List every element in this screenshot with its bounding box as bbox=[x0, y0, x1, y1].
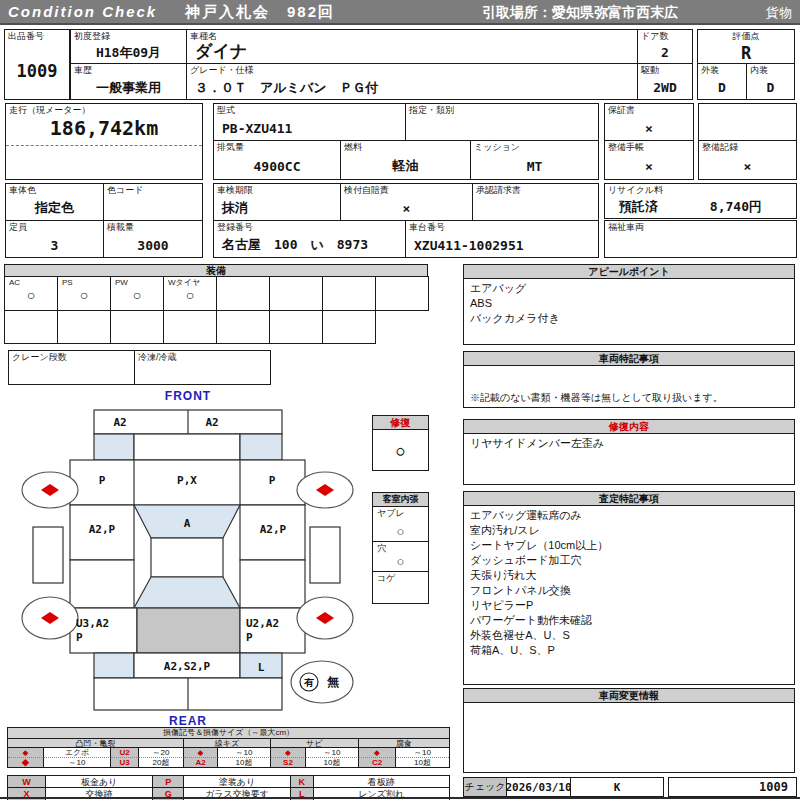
maintenance-record-label: 整備記録 bbox=[699, 141, 796, 153]
appeal-points-header: アピールポイント bbox=[464, 265, 794, 279]
color-code-value bbox=[104, 196, 202, 220]
damage-diamond-icon: ◆ bbox=[184, 748, 218, 758]
damage-diamond-icon: ◆ bbox=[359, 748, 396, 758]
equipment-cell-empty bbox=[110, 310, 164, 344]
body-color-value: 指定色 bbox=[6, 196, 103, 220]
repair-details-header: 修復内容 bbox=[464, 420, 794, 434]
registration-number-value: 名古屋 100 い 8973 bbox=[214, 233, 405, 257]
recycle-fee-label: リサイクル料 bbox=[605, 184, 796, 196]
load-capacity-value: 3000 bbox=[104, 233, 202, 257]
legend-code: U3 bbox=[111, 758, 139, 767]
equipment-cell-pw: PW ○ bbox=[110, 276, 164, 311]
assessment-line: 荷箱A、U、S、P bbox=[470, 643, 788, 658]
damage-diamond-icon: ◆ bbox=[8, 758, 44, 767]
auction-sheet: Condition Check 神戸入札会 982回 引取場所：愛知県弥富市西末… bbox=[0, 0, 800, 800]
legend-cell: 20超 bbox=[139, 758, 184, 767]
lot-number-box: 出品番号 1009 bbox=[4, 29, 70, 100]
equipment-cell-empty bbox=[216, 310, 270, 344]
fuel-value: 軽油 bbox=[341, 153, 470, 179]
vehicle-notes-text: ※記載のない書類・機器等は無しとして取り扱います。 bbox=[464, 366, 794, 407]
equipment-mark: ○ bbox=[58, 287, 110, 303]
check-date: 2026/03/10 bbox=[507, 778, 570, 796]
diagram-cell-label: L bbox=[258, 661, 265, 674]
warranty-box: 保証書 × bbox=[604, 103, 694, 141]
maintenance-record-box: 整備記録 × bbox=[698, 140, 797, 180]
displacement-label: 排気量 bbox=[214, 141, 340, 153]
load-capacity-box: 積載量 3000 bbox=[103, 220, 203, 258]
equipment-mark: ○ bbox=[5, 287, 57, 303]
maintenance-book-label: 整備手帳 bbox=[605, 141, 693, 153]
load-capacity-label: 積載量 bbox=[104, 221, 202, 233]
appeal-line: バックカメラ付き bbox=[470, 311, 788, 326]
vehicle-notes-header: 車両特記事項 bbox=[464, 352, 794, 366]
equipment-mark: ○ bbox=[164, 287, 216, 303]
assessment-notes-header: 査定特記事項 bbox=[464, 492, 794, 506]
drive-value: 2WD bbox=[638, 76, 692, 99]
appeal-line: ABS bbox=[470, 296, 788, 311]
score-box: 評価点 R bbox=[697, 29, 795, 64]
legend-code: W bbox=[8, 776, 46, 788]
assessment-line: シートヤブレ（10cm以上） bbox=[470, 538, 788, 553]
mileage-label: 走行（現メーター） bbox=[6, 104, 202, 116]
equipment-cell-empty bbox=[375, 276, 429, 311]
spare-yes-label: 有 bbox=[303, 677, 314, 688]
cabin-interior-row-burn: コゲ bbox=[373, 572, 428, 603]
assessment-line: リヤピラーP bbox=[470, 598, 788, 613]
doors-value: 2 bbox=[638, 42, 692, 63]
legend-cell: 10超 bbox=[218, 758, 271, 767]
cabin-interior-row-tear: ヤブレ ○ bbox=[373, 507, 428, 542]
change-info-panel: 車両変更情報 bbox=[463, 688, 795, 773]
first-registration-box: 初度登録 H18年09月 bbox=[70, 29, 187, 64]
grade-box: グレード・仕様 ３．０Ｔ アルミバン ＰＧ付 bbox=[186, 63, 638, 100]
legend-cell: 塗装あり bbox=[184, 776, 291, 788]
bottom-rule bbox=[0, 797, 800, 799]
assessment-line: 室内汚れ/スレ bbox=[470, 523, 788, 538]
legend-code: A2 bbox=[184, 758, 218, 767]
cabin-interior-label: ヤブレ bbox=[374, 507, 408, 519]
capacity-box: 定員 3 bbox=[5, 220, 104, 258]
model-name-value: ダイナ bbox=[187, 40, 637, 63]
appeal-points-panel: アピールポイント エアバッグ ABS バックカメラ付き bbox=[463, 264, 795, 345]
recycle-status-value: 預託済 bbox=[619, 198, 658, 216]
check-label: チェック bbox=[464, 780, 506, 794]
check-label-cell: チェック bbox=[463, 777, 507, 797]
legend-group-rust: サビ bbox=[271, 739, 359, 748]
assessment-line: ダッシュボード加工穴 bbox=[470, 553, 788, 568]
maintenance-book-value: × bbox=[605, 153, 693, 179]
legend-group-corrosion: 腐食 bbox=[359, 739, 449, 748]
legend-code: K bbox=[291, 776, 314, 788]
lot-number-value: 1009 bbox=[5, 42, 69, 99]
repair-flag-header: 修復 bbox=[373, 416, 428, 430]
color-code-box: 色コード bbox=[103, 183, 203, 221]
assessment-line: フロントパネル交換 bbox=[470, 583, 788, 598]
mileage-box: 走行（現メーター） 186,742km bbox=[5, 103, 203, 180]
cabin-interior-mark: ○ bbox=[373, 524, 428, 539]
color-code-label: 色コード bbox=[104, 184, 202, 196]
diagram-cell-label: A2,S2,P bbox=[164, 660, 211, 673]
equipment-cell-empty bbox=[269, 276, 323, 311]
equipment-cell-empty bbox=[322, 276, 376, 311]
diagram-cell-label: P bbox=[269, 474, 276, 487]
cabin-interior-label: 穴 bbox=[374, 542, 389, 554]
pickup-location: 引取場所：愛知県弥富市西末広 bbox=[482, 4, 678, 22]
displacement-box: 排気量 4900CC bbox=[213, 140, 341, 180]
diagram-cell-label: P bbox=[246, 631, 253, 644]
approval-label: 承認請求書 bbox=[473, 184, 598, 196]
exterior-grade-label: 外装 bbox=[698, 64, 746, 76]
equipment-cell-empty bbox=[269, 310, 323, 344]
insurance-label: 検付自賠責 bbox=[341, 184, 472, 196]
history-value: 一般事業用 bbox=[71, 76, 186, 99]
insurance-value: × bbox=[341, 196, 472, 220]
exterior-grade-box: 外装 D bbox=[697, 63, 747, 100]
equipment-cell-empty bbox=[322, 310, 376, 344]
transmission-box: ミッション MT bbox=[470, 140, 599, 180]
legend-group-scratch: 線キズ bbox=[184, 739, 271, 748]
welfare-box: 福祉車両 bbox=[604, 220, 797, 258]
displacement-value: 4900CC bbox=[214, 153, 340, 179]
class-value bbox=[406, 116, 598, 140]
damage-diamond-icon: ◆ bbox=[8, 748, 44, 758]
exterior-grade-value: D bbox=[698, 76, 746, 99]
assessment-line: パワーゲート動作未確認 bbox=[470, 613, 788, 628]
legend-code: U2 bbox=[111, 748, 139, 758]
legend-code: S2 bbox=[271, 758, 306, 767]
equipment-cell-ps: PS ○ bbox=[57, 276, 111, 311]
maintenance-book-box: 整備手帳 × bbox=[604, 140, 694, 180]
freezer-box: 冷凍/冷蔵 bbox=[134, 350, 271, 385]
class-box: 指定・類別 bbox=[405, 103, 599, 141]
diagram-cell-label: A2 bbox=[113, 416, 126, 429]
diagram-cell-label: A2,P bbox=[89, 523, 116, 536]
front-label: FRONT bbox=[148, 389, 228, 403]
model-code-label: 型式 bbox=[214, 104, 405, 116]
assessment-notes-panel: 査定特記事項 エアバッグ運転席のみ 室内汚れ/スレ シートヤブレ（10cm以上）… bbox=[463, 491, 795, 685]
history-box: 車歴 一般事業用 bbox=[70, 63, 187, 100]
freezer-value bbox=[135, 363, 270, 384]
cabin-interior-mark: ○ bbox=[373, 554, 428, 569]
category-badge: 貨物 bbox=[766, 4, 792, 22]
diagram-cell-label: P bbox=[76, 631, 83, 644]
equipment-cell-empty bbox=[163, 310, 217, 344]
spare-no-label: 無 bbox=[326, 675, 339, 689]
diagram-cell-label: A bbox=[184, 517, 191, 530]
cabin-interior-header: 客室内張 bbox=[373, 493, 428, 507]
approval-value bbox=[473, 196, 598, 220]
chassis-number-label: 車台番号 bbox=[406, 221, 598, 233]
diagram-cell-label: P bbox=[99, 474, 106, 487]
legend-cell: 10超 bbox=[396, 758, 449, 767]
crane-box: クレーン段数 bbox=[8, 350, 135, 385]
inspection-value: 抹消 bbox=[214, 196, 340, 220]
legend-code: C2 bbox=[359, 758, 396, 767]
registration-number-label: 登録番号 bbox=[214, 221, 405, 233]
legend-cell: エクボ bbox=[44, 748, 111, 758]
legend-code: P bbox=[153, 776, 184, 788]
transmission-label: ミッション bbox=[471, 141, 598, 153]
recycle-fee-box: リサイクル料 預託済 8,740円 bbox=[604, 183, 797, 219]
cabin-interior-row-hole: 穴 ○ bbox=[373, 542, 428, 571]
warranty-label: 保証書 bbox=[605, 104, 693, 116]
equipment-cell-empty bbox=[216, 276, 270, 311]
chassis-number-box: 車台番号 XZU411-1002951 bbox=[405, 220, 599, 258]
fuel-label: 燃料 bbox=[341, 141, 470, 153]
registration-number-box: 登録番号 名古屋 100 い 8973 bbox=[213, 220, 406, 258]
recycle-fee-value: 8,740円 bbox=[710, 198, 762, 216]
equipment-cell-empty bbox=[57, 310, 111, 344]
mileage-second-row bbox=[6, 145, 202, 179]
doors-box: ドア数 2 bbox=[637, 29, 693, 64]
lot-number-label: 出品番号 bbox=[5, 30, 69, 42]
inspection-label: 車検期限 bbox=[214, 184, 340, 196]
legend-cell: ～20 bbox=[139, 748, 184, 758]
equipment-cell-ac: AC ○ bbox=[4, 276, 58, 311]
change-info-body bbox=[464, 703, 794, 772]
equipment-cell-wtire: Wタイヤ ○ bbox=[163, 276, 217, 311]
maintenance-record-value: × bbox=[699, 153, 796, 179]
blank-box bbox=[698, 103, 797, 141]
mileage-value: 186,742km bbox=[6, 116, 202, 140]
equipment-cell-empty bbox=[4, 310, 58, 344]
welfare-value bbox=[605, 233, 796, 257]
crane-label: クレーン段数 bbox=[9, 351, 134, 363]
interior-grade-box: 内装 D bbox=[746, 63, 795, 100]
approval-box: 承認請求書 bbox=[472, 183, 599, 221]
diagram-cell-label: A2,P bbox=[260, 523, 287, 536]
legend-cell: 看板跡 bbox=[314, 776, 449, 788]
legend-group-dent: 凸凹・亀裂 bbox=[8, 739, 184, 748]
grade-label: グレード・仕様 bbox=[187, 64, 637, 76]
change-info-header: 車両変更情報 bbox=[464, 689, 794, 703]
capacity-value: 3 bbox=[6, 233, 103, 257]
legend-cell: 板金あり bbox=[46, 776, 154, 788]
brand-title: Condition Check bbox=[8, 3, 157, 20]
first-registration-value: H18年09月 bbox=[71, 42, 186, 63]
legend-cell: ～10 bbox=[306, 748, 359, 758]
doors-label: ドア数 bbox=[638, 30, 692, 42]
legend-cell: 10超 bbox=[306, 758, 359, 767]
model-code-value: PB-XZU411 bbox=[214, 116, 405, 140]
cabin-interior-panel: 客室内張 ヤブレ ○ 穴 ○ コゲ bbox=[372, 492, 429, 604]
assessment-line: 天張り汚れ大 bbox=[470, 568, 788, 583]
warranty-value: × bbox=[605, 116, 693, 140]
diagram-cell-label: P,X bbox=[177, 474, 197, 487]
insurance-box: 検付自賠責 × bbox=[340, 183, 473, 221]
damage-legend: 損傷記号＆損傷サイズ（～最大cm） 凸凹・亀裂 線キズ サビ 腐食 ◆ エクボ … bbox=[7, 727, 450, 800]
damage-diamond-icon: ◆ bbox=[271, 748, 306, 758]
drive-box: 駆動 2WD bbox=[637, 63, 693, 100]
score-label: 評価点 bbox=[698, 30, 794, 42]
repair-details-panel: 修復内容 リヤサイドメンバー左歪み bbox=[463, 419, 795, 485]
check-lot-cell: 1009 bbox=[668, 777, 797, 797]
capacity-label: 定員 bbox=[6, 221, 103, 233]
assessment-line: エアバッグ運転席のみ bbox=[470, 508, 788, 523]
check-inspector-cell: K bbox=[570, 777, 664, 797]
legend-cell: ～10 bbox=[218, 748, 271, 758]
vehicle-notes-panel: 車両特記事項 ※記載のない書類・機器等は無しとして取り扱います。 bbox=[463, 351, 795, 408]
legend-cell: ～10 bbox=[396, 748, 449, 758]
check-date-cell: 2026/03/10 bbox=[506, 777, 571, 797]
welfare-label: 福祉車両 bbox=[605, 221, 796, 233]
drive-label: 駆動 bbox=[638, 64, 692, 76]
cabin-interior-label: コゲ bbox=[374, 572, 398, 584]
class-label: 指定・類別 bbox=[406, 104, 598, 116]
model-code-box: 型式 PB-XZU411 bbox=[213, 103, 406, 141]
interior-grade-value: D bbox=[747, 76, 794, 99]
freezer-label: 冷凍/冷蔵 bbox=[135, 351, 270, 363]
model-name-box: 車種名 ダイナ bbox=[186, 29, 638, 64]
fuel-box: 燃料 軽油 bbox=[340, 140, 471, 180]
repair-flag-panel: 修復 ○ bbox=[372, 415, 429, 471]
transmission-value: MT bbox=[471, 153, 598, 179]
diagram-cell-label: A2 bbox=[205, 416, 218, 429]
history-label: 車歴 bbox=[71, 64, 186, 76]
model-name-label: 車種名 bbox=[187, 30, 637, 40]
grade-value: ３．０Ｔ アルミバン ＰＧ付 bbox=[187, 76, 637, 99]
diagram-cell-label: U3,A2 bbox=[76, 617, 109, 630]
body-color-label: 車体色 bbox=[6, 184, 103, 196]
title-bar: Condition Check 神戸入札会 982回 引取場所：愛知県弥富市西末… bbox=[0, 0, 800, 25]
auction-title: 神戸入札会 982回 bbox=[185, 3, 335, 22]
assessment-line: 外装色褪せA、U、S bbox=[470, 628, 788, 643]
repair-details-line: リヤサイドメンバー左歪み bbox=[470, 436, 788, 451]
diagram-cell-label: U2,A2 bbox=[246, 617, 279, 630]
chassis-number-value: XZU411-1002951 bbox=[406, 233, 598, 257]
interior-grade-label: 内装 bbox=[747, 64, 794, 76]
first-registration-label: 初度登録 bbox=[71, 30, 186, 42]
crane-value bbox=[9, 363, 134, 384]
score-value: R bbox=[698, 42, 794, 63]
body-color-box: 車体色 指定色 bbox=[5, 183, 104, 221]
legend-cell: ～10 bbox=[44, 758, 111, 767]
appeal-line: エアバッグ bbox=[470, 281, 788, 296]
check-inspector: K bbox=[571, 778, 663, 796]
check-lot-number: 1009 bbox=[669, 778, 796, 796]
equipment-mark: ○ bbox=[111, 287, 163, 303]
repair-flag-mark: ○ bbox=[373, 430, 428, 470]
legend-title: 損傷記号＆損傷サイズ（～最大cm） bbox=[8, 728, 449, 739]
inspection-box: 車検期限 抹消 bbox=[213, 183, 341, 221]
